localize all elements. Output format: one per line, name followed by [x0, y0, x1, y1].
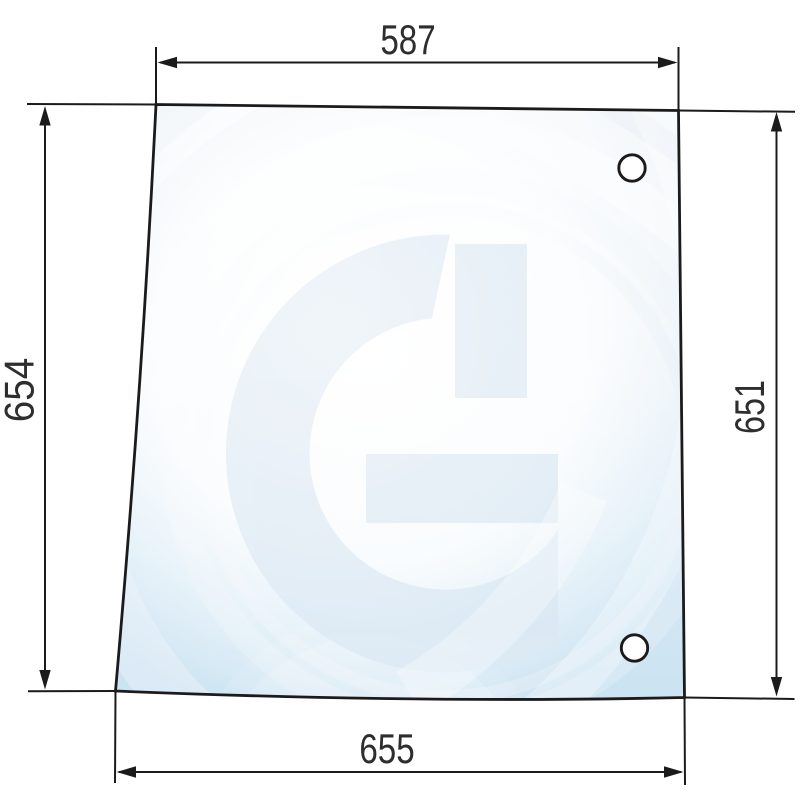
svg-text:654: 654	[0, 358, 43, 422]
svg-text:651: 651	[726, 380, 773, 434]
svg-text:655: 655	[359, 725, 414, 771]
svg-text:587: 587	[380, 16, 435, 62]
